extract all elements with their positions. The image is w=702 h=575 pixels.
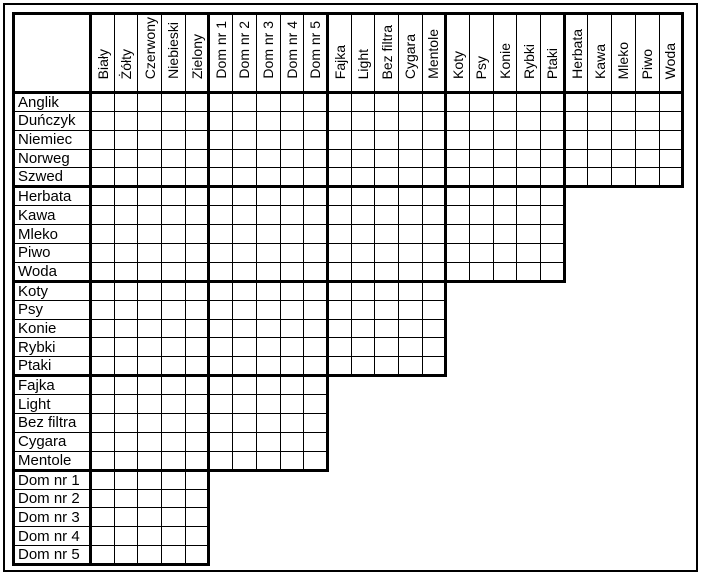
grid-cell[interactable] — [422, 206, 446, 225]
grid-cell[interactable] — [351, 300, 375, 319]
grid-cell[interactable] — [138, 168, 162, 187]
grid-cell[interactable] — [185, 545, 209, 564]
grid-cell[interactable] — [422, 149, 446, 168]
grid-cell[interactable] — [470, 149, 494, 168]
grid-cell[interactable] — [351, 338, 375, 357]
grid-cell[interactable] — [304, 93, 328, 112]
grid-cell[interactable] — [233, 187, 257, 206]
grid-cell[interactable] — [327, 168, 351, 187]
grid-cell[interactable] — [493, 112, 517, 131]
grid-cell[interactable] — [493, 187, 517, 206]
grid-cell[interactable] — [351, 168, 375, 187]
grid-cell[interactable] — [138, 93, 162, 112]
grid-cell[interactable] — [91, 395, 115, 414]
grid-cell[interactable] — [470, 112, 494, 131]
grid-cell[interactable] — [91, 225, 115, 244]
grid-cell[interactable] — [398, 206, 422, 225]
grid-cell[interactable] — [138, 187, 162, 206]
grid-cell[interactable] — [517, 112, 541, 131]
grid-cell[interactable] — [446, 206, 470, 225]
grid-cell[interactable] — [209, 187, 233, 206]
grid-cell[interactable] — [209, 262, 233, 281]
grid-cell[interactable] — [327, 262, 351, 281]
grid-cell[interactable] — [162, 545, 186, 564]
grid-cell[interactable] — [493, 93, 517, 112]
grid-cell[interactable] — [588, 130, 612, 149]
grid-cell[interactable] — [185, 149, 209, 168]
grid-cell[interactable] — [185, 357, 209, 376]
grid-cell[interactable] — [185, 281, 209, 300]
grid-cell[interactable] — [91, 451, 115, 470]
grid-cell[interactable] — [256, 338, 280, 357]
grid-cell[interactable] — [185, 527, 209, 546]
grid-cell[interactable] — [280, 225, 304, 244]
grid-cell[interactable] — [138, 470, 162, 489]
grid-cell[interactable] — [162, 149, 186, 168]
grid-cell[interactable] — [470, 187, 494, 206]
grid-cell[interactable] — [280, 451, 304, 470]
grid-cell[interactable] — [398, 168, 422, 187]
grid-cell[interactable] — [185, 93, 209, 112]
grid-cell[interactable] — [138, 338, 162, 357]
grid-cell[interactable] — [162, 376, 186, 395]
grid-cell[interactable] — [91, 470, 115, 489]
grid-cell[interactable] — [256, 376, 280, 395]
grid-cell[interactable] — [138, 357, 162, 376]
grid-cell[interactable] — [233, 112, 257, 131]
grid-cell[interactable] — [256, 432, 280, 451]
grid-cell[interactable] — [564, 93, 588, 112]
grid-cell[interactable] — [185, 319, 209, 338]
grid-cell[interactable] — [185, 112, 209, 131]
grid-cell[interactable] — [422, 338, 446, 357]
grid-cell[interactable] — [162, 281, 186, 300]
grid-cell[interactable] — [304, 149, 328, 168]
grid-cell[interactable] — [233, 225, 257, 244]
grid-cell[interactable] — [327, 243, 351, 262]
grid-cell[interactable] — [233, 376, 257, 395]
grid-cell[interactable] — [280, 149, 304, 168]
grid-cell[interactable] — [162, 508, 186, 527]
grid-cell[interactable] — [91, 338, 115, 357]
grid-cell[interactable] — [233, 300, 257, 319]
grid-cell[interactable] — [564, 130, 588, 149]
grid-cell[interactable] — [91, 93, 115, 112]
grid-cell[interactable] — [304, 319, 328, 338]
grid-cell[interactable] — [564, 112, 588, 131]
grid-cell[interactable] — [280, 376, 304, 395]
grid-cell[interactable] — [351, 112, 375, 131]
grid-cell[interactable] — [422, 243, 446, 262]
grid-cell[interactable] — [91, 413, 115, 432]
grid-cell[interactable] — [659, 130, 683, 149]
grid-cell[interactable] — [138, 130, 162, 149]
grid-cell[interactable] — [162, 357, 186, 376]
grid-cell[interactable] — [398, 338, 422, 357]
grid-cell[interactable] — [185, 470, 209, 489]
grid-cell[interactable] — [280, 206, 304, 225]
grid-cell[interactable] — [541, 149, 565, 168]
grid-cell[interactable] — [398, 262, 422, 281]
grid-cell[interactable] — [209, 206, 233, 225]
grid-cell[interactable] — [470, 130, 494, 149]
grid-cell[interactable] — [185, 225, 209, 244]
grid-cell[interactable] — [91, 112, 115, 131]
grid-cell[interactable] — [233, 338, 257, 357]
grid-cell[interactable] — [351, 281, 375, 300]
grid-cell[interactable] — [327, 300, 351, 319]
grid-cell[interactable] — [91, 168, 115, 187]
grid-cell[interactable] — [375, 300, 399, 319]
grid-cell[interactable] — [493, 243, 517, 262]
grid-cell[interactable] — [114, 357, 138, 376]
grid-cell[interactable] — [422, 168, 446, 187]
grid-cell[interactable] — [209, 395, 233, 414]
grid-cell[interactable] — [162, 130, 186, 149]
grid-cell[interactable] — [375, 357, 399, 376]
grid-cell[interactable] — [304, 281, 328, 300]
grid-cell[interactable] — [209, 413, 233, 432]
grid-cell[interactable] — [280, 112, 304, 131]
grid-cell[interactable] — [470, 206, 494, 225]
grid-cell[interactable] — [233, 432, 257, 451]
grid-cell[interactable] — [185, 168, 209, 187]
grid-cell[interactable] — [256, 187, 280, 206]
grid-cell[interactable] — [138, 319, 162, 338]
grid-cell[interactable] — [280, 300, 304, 319]
grid-cell[interactable] — [517, 130, 541, 149]
grid-cell[interactable] — [304, 376, 328, 395]
grid-cell[interactable] — [446, 149, 470, 168]
grid-cell[interactable] — [209, 432, 233, 451]
grid-cell[interactable] — [185, 451, 209, 470]
grid-cell[interactable] — [280, 413, 304, 432]
grid-cell[interactable] — [138, 300, 162, 319]
grid-cell[interactable] — [91, 243, 115, 262]
grid-cell[interactable] — [304, 130, 328, 149]
grid-cell[interactable] — [256, 149, 280, 168]
grid-cell[interactable] — [375, 206, 399, 225]
grid-cell[interactable] — [351, 130, 375, 149]
grid-cell[interactable] — [422, 281, 446, 300]
grid-cell[interactable] — [138, 451, 162, 470]
grid-cell[interactable] — [256, 168, 280, 187]
grid-cell[interactable] — [327, 112, 351, 131]
grid-cell[interactable] — [398, 187, 422, 206]
grid-cell[interactable] — [375, 319, 399, 338]
grid-cell[interactable] — [185, 338, 209, 357]
grid-cell[interactable] — [280, 262, 304, 281]
grid-cell[interactable] — [375, 243, 399, 262]
grid-cell[interactable] — [541, 243, 565, 262]
grid-cell[interactable] — [185, 130, 209, 149]
grid-cell[interactable] — [304, 395, 328, 414]
grid-cell[interactable] — [304, 187, 328, 206]
grid-cell[interactable] — [138, 545, 162, 564]
grid-cell[interactable] — [446, 130, 470, 149]
grid-cell[interactable] — [304, 225, 328, 244]
grid-cell[interactable] — [541, 168, 565, 187]
grid-cell[interactable] — [162, 432, 186, 451]
grid-cell[interactable] — [280, 187, 304, 206]
grid-cell[interactable] — [517, 262, 541, 281]
grid-cell[interactable] — [233, 262, 257, 281]
grid-cell[interactable] — [541, 130, 565, 149]
grid-cell[interactable] — [256, 413, 280, 432]
grid-cell[interactable] — [233, 281, 257, 300]
grid-cell[interactable] — [138, 527, 162, 546]
grid-cell[interactable] — [162, 489, 186, 508]
grid-cell[interactable] — [659, 168, 683, 187]
grid-cell[interactable] — [375, 262, 399, 281]
grid-cell[interactable] — [398, 281, 422, 300]
grid-cell[interactable] — [375, 93, 399, 112]
grid-cell[interactable] — [185, 300, 209, 319]
grid-cell[interactable] — [91, 545, 115, 564]
grid-cell[interactable] — [233, 93, 257, 112]
grid-cell[interactable] — [541, 262, 565, 281]
grid-cell[interactable] — [422, 225, 446, 244]
grid-cell[interactable] — [138, 395, 162, 414]
grid-cell[interactable] — [209, 281, 233, 300]
grid-cell[interactable] — [256, 262, 280, 281]
grid-cell[interactable] — [375, 281, 399, 300]
grid-cell[interactable] — [185, 206, 209, 225]
grid-cell[interactable] — [91, 508, 115, 527]
grid-cell[interactable] — [209, 225, 233, 244]
grid-cell[interactable] — [470, 243, 494, 262]
grid-cell[interactable] — [422, 262, 446, 281]
grid-cell[interactable] — [280, 93, 304, 112]
grid-cell[interactable] — [564, 168, 588, 187]
grid-cell[interactable] — [493, 130, 517, 149]
grid-cell[interactable] — [280, 338, 304, 357]
grid-cell[interactable] — [493, 149, 517, 168]
grid-cell[interactable] — [422, 93, 446, 112]
grid-cell[interactable] — [422, 130, 446, 149]
grid-cell[interactable] — [256, 112, 280, 131]
grid-cell[interactable] — [659, 112, 683, 131]
grid-cell[interactable] — [327, 93, 351, 112]
grid-cell[interactable] — [304, 206, 328, 225]
grid-cell[interactable] — [114, 489, 138, 508]
grid-cell[interactable] — [114, 262, 138, 281]
grid-cell[interactable] — [517, 225, 541, 244]
grid-cell[interactable] — [209, 112, 233, 131]
grid-cell[interactable] — [351, 93, 375, 112]
grid-cell[interactable] — [375, 112, 399, 131]
grid-cell[interactable] — [114, 168, 138, 187]
grid-cell[interactable] — [612, 168, 636, 187]
grid-cell[interactable] — [209, 243, 233, 262]
grid-cell[interactable] — [256, 281, 280, 300]
grid-cell[interactable] — [588, 168, 612, 187]
grid-cell[interactable] — [280, 395, 304, 414]
grid-cell[interactable] — [114, 432, 138, 451]
grid-cell[interactable] — [280, 357, 304, 376]
grid-cell[interactable] — [470, 262, 494, 281]
grid-cell[interactable] — [351, 357, 375, 376]
grid-cell[interactable] — [114, 527, 138, 546]
grid-cell[interactable] — [398, 112, 422, 131]
grid-cell[interactable] — [517, 206, 541, 225]
grid-cell[interactable] — [280, 432, 304, 451]
grid-cell[interactable] — [422, 357, 446, 376]
grid-cell[interactable] — [635, 149, 659, 168]
grid-cell[interactable] — [162, 187, 186, 206]
grid-cell[interactable] — [422, 112, 446, 131]
grid-cell[interactable] — [517, 168, 541, 187]
grid-cell[interactable] — [304, 300, 328, 319]
grid-cell[interactable] — [659, 149, 683, 168]
grid-cell[interactable] — [162, 168, 186, 187]
grid-cell[interactable] — [114, 281, 138, 300]
grid-cell[interactable] — [327, 187, 351, 206]
grid-cell[interactable] — [304, 112, 328, 131]
grid-cell[interactable] — [185, 413, 209, 432]
grid-cell[interactable] — [470, 225, 494, 244]
grid-cell[interactable] — [280, 168, 304, 187]
grid-cell[interactable] — [162, 451, 186, 470]
grid-cell[interactable] — [91, 376, 115, 395]
grid-cell[interactable] — [398, 149, 422, 168]
grid-cell[interactable] — [162, 262, 186, 281]
grid-cell[interactable] — [612, 112, 636, 131]
grid-cell[interactable] — [398, 243, 422, 262]
grid-cell[interactable] — [351, 187, 375, 206]
grid-cell[interactable] — [91, 489, 115, 508]
grid-cell[interactable] — [209, 130, 233, 149]
grid-cell[interactable] — [114, 225, 138, 244]
grid-cell[interactable] — [138, 508, 162, 527]
grid-cell[interactable] — [541, 225, 565, 244]
grid-cell[interactable] — [446, 112, 470, 131]
grid-cell[interactable] — [304, 262, 328, 281]
grid-cell[interactable] — [114, 395, 138, 414]
grid-cell[interactable] — [256, 451, 280, 470]
grid-cell[interactable] — [91, 527, 115, 546]
grid-cell[interactable] — [91, 187, 115, 206]
grid-cell[interactable] — [398, 130, 422, 149]
grid-cell[interactable] — [398, 319, 422, 338]
grid-cell[interactable] — [233, 395, 257, 414]
grid-cell[interactable] — [517, 149, 541, 168]
grid-cell[interactable] — [446, 93, 470, 112]
grid-cell[interactable] — [233, 319, 257, 338]
grid-cell[interactable] — [114, 300, 138, 319]
grid-cell[interactable] — [446, 187, 470, 206]
grid-cell[interactable] — [280, 319, 304, 338]
grid-cell[interactable] — [185, 187, 209, 206]
grid-cell[interactable] — [375, 338, 399, 357]
grid-cell[interactable] — [185, 489, 209, 508]
grid-cell[interactable] — [256, 357, 280, 376]
grid-cell[interactable] — [517, 93, 541, 112]
grid-cell[interactable] — [375, 187, 399, 206]
grid-cell[interactable] — [162, 93, 186, 112]
grid-cell[interactable] — [517, 187, 541, 206]
grid-cell[interactable] — [138, 149, 162, 168]
grid-cell[interactable] — [256, 300, 280, 319]
grid-cell[interactable] — [114, 451, 138, 470]
grid-cell[interactable] — [256, 319, 280, 338]
grid-cell[interactable] — [375, 149, 399, 168]
grid-cell[interactable] — [327, 130, 351, 149]
grid-cell[interactable] — [304, 413, 328, 432]
grid-cell[interactable] — [256, 130, 280, 149]
grid-cell[interactable] — [233, 451, 257, 470]
grid-cell[interactable] — [351, 149, 375, 168]
grid-cell[interactable] — [162, 300, 186, 319]
grid-cell[interactable] — [114, 413, 138, 432]
grid-cell[interactable] — [209, 338, 233, 357]
grid-cell[interactable] — [351, 206, 375, 225]
grid-cell[interactable] — [138, 489, 162, 508]
grid-cell[interactable] — [398, 225, 422, 244]
grid-cell[interactable] — [91, 281, 115, 300]
grid-cell[interactable] — [256, 206, 280, 225]
grid-cell[interactable] — [114, 93, 138, 112]
grid-cell[interactable] — [398, 300, 422, 319]
grid-cell[interactable] — [233, 130, 257, 149]
grid-cell[interactable] — [185, 262, 209, 281]
grid-cell[interactable] — [138, 281, 162, 300]
grid-cell[interactable] — [91, 206, 115, 225]
grid-cell[interactable] — [91, 300, 115, 319]
grid-cell[interactable] — [304, 357, 328, 376]
grid-cell[interactable] — [304, 451, 328, 470]
grid-cell[interactable] — [233, 206, 257, 225]
grid-cell[interactable] — [209, 319, 233, 338]
grid-cell[interactable] — [114, 243, 138, 262]
grid-cell[interactable] — [114, 319, 138, 338]
grid-cell[interactable] — [209, 168, 233, 187]
grid-cell[interactable] — [114, 112, 138, 131]
grid-cell[interactable] — [162, 112, 186, 131]
grid-cell[interactable] — [91, 357, 115, 376]
grid-cell[interactable] — [446, 243, 470, 262]
grid-cell[interactable] — [185, 508, 209, 527]
grid-cell[interactable] — [91, 319, 115, 338]
grid-cell[interactable] — [327, 281, 351, 300]
grid-cell[interactable] — [470, 93, 494, 112]
grid-cell[interactable] — [138, 206, 162, 225]
grid-cell[interactable] — [280, 130, 304, 149]
grid-cell[interactable] — [659, 93, 683, 112]
grid-cell[interactable] — [114, 338, 138, 357]
grid-cell[interactable] — [304, 243, 328, 262]
grid-cell[interactable] — [635, 93, 659, 112]
grid-cell[interactable] — [635, 112, 659, 131]
grid-cell[interactable] — [327, 225, 351, 244]
grid-cell[interactable] — [162, 413, 186, 432]
grid-cell[interactable] — [138, 432, 162, 451]
grid-cell[interactable] — [304, 338, 328, 357]
grid-cell[interactable] — [138, 262, 162, 281]
grid-cell[interactable] — [375, 130, 399, 149]
grid-cell[interactable] — [91, 149, 115, 168]
grid-cell[interactable] — [162, 470, 186, 489]
grid-cell[interactable] — [209, 149, 233, 168]
grid-cell[interactable] — [375, 225, 399, 244]
grid-cell[interactable] — [541, 93, 565, 112]
grid-cell[interactable] — [446, 168, 470, 187]
grid-cell[interactable] — [138, 243, 162, 262]
grid-cell[interactable] — [612, 149, 636, 168]
grid-cell[interactable] — [635, 168, 659, 187]
grid-cell[interactable] — [114, 149, 138, 168]
grid-cell[interactable] — [327, 206, 351, 225]
